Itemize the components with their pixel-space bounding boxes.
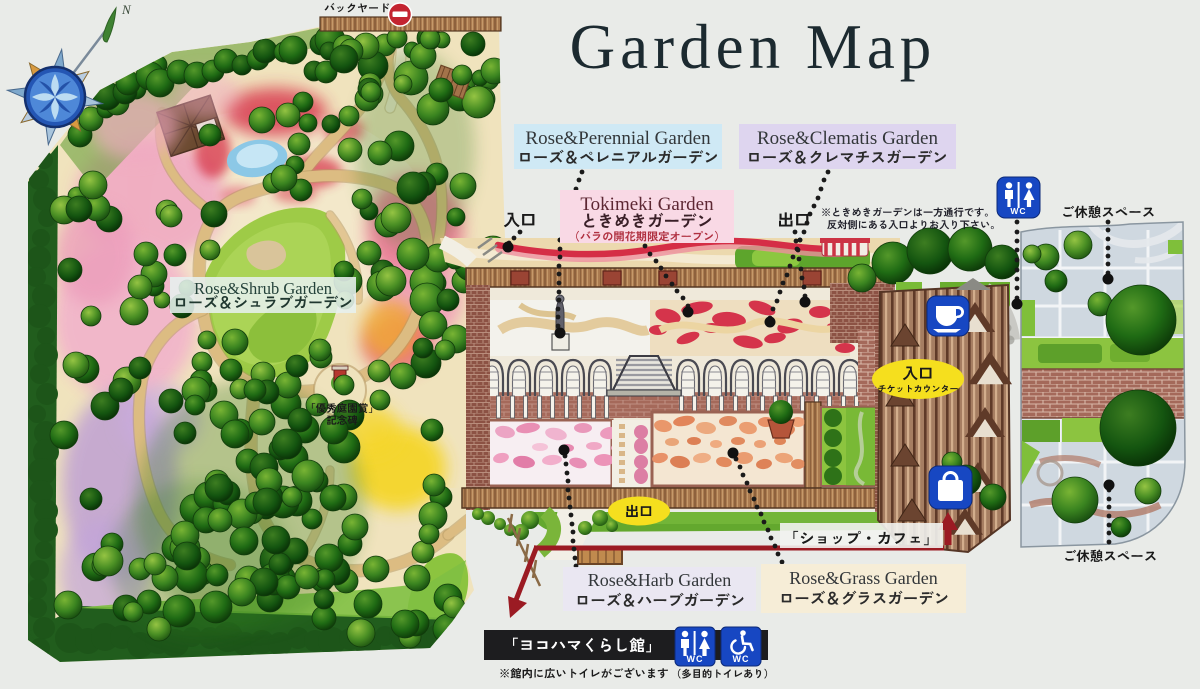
svg-text:N: N [121,2,132,17]
svg-text:WC: WC [687,654,704,664]
svg-text:WC: WC [733,654,750,664]
svg-text:WC: WC [1010,206,1026,216]
